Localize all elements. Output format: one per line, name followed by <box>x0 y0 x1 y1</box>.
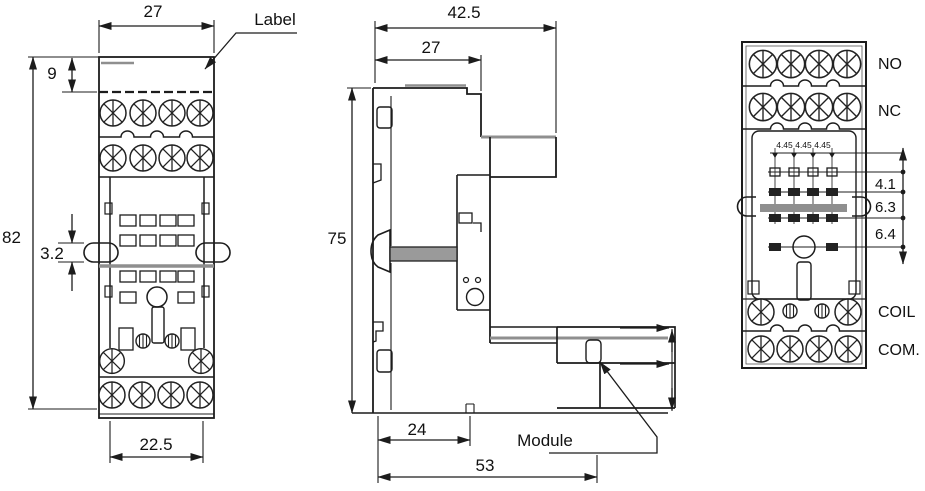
dim-front-width-top: 27 <box>144 2 163 21</box>
hold-down-clip-left <box>84 243 118 262</box>
side-notch-left <box>738 197 757 216</box>
dim-side-bottom-total: 53 <box>476 456 495 475</box>
dim-side-bottom-inner: 24 <box>408 420 427 439</box>
dim-front-width-bottom: 22.5 <box>139 435 172 454</box>
pin-row-1 <box>120 215 194 226</box>
front-view: 27 Label 9 82 3.2 22.5 <box>2 2 297 463</box>
technical-drawing-page: 27 Label 9 82 3.2 22.5 <box>0 0 925 491</box>
latch-screw <box>467 289 484 306</box>
module-callout: Module <box>517 431 573 450</box>
release-lever-bar <box>390 247 457 261</box>
dim-pin-pitch-1: 4.45 <box>776 140 793 150</box>
dim-front-label-height: 9 <box>47 64 56 83</box>
dim-row-gap-3: 6.4 <box>875 226 896 243</box>
dim-side-depth-total: 42.5 <box>447 3 480 22</box>
bottom-view: 4.45 4.45 4.45 4.1 6.3 6.4 NO NC COIL CO… <box>738 42 920 368</box>
side-view: 42.5 27 75 24 53 Module <box>328 3 675 483</box>
dim-pin-pitch-3: 4.45 <box>814 140 831 150</box>
dim-front-total-height: 82 <box>2 228 21 247</box>
bottom-view-pin-field <box>738 131 904 318</box>
label-callout: Label <box>254 10 296 29</box>
pin-row-4 <box>120 287 194 307</box>
pin-row-2 <box>120 235 194 246</box>
dim-pin-pitch-2: 4.45 <box>795 140 812 150</box>
din-rail-slot-bottom <box>377 350 392 372</box>
center-hole <box>147 287 167 307</box>
dim-front-clip: 3.2 <box>40 244 64 263</box>
pin-row-3 <box>120 271 194 282</box>
row-label-nc: NC <box>878 103 901 120</box>
dim-row-gap-1: 4.1 <box>875 176 896 193</box>
row-label-no: NO <box>878 56 902 73</box>
keying-slot <box>797 262 811 300</box>
bottom-view-dimensions: 4.45 4.45 4.45 4.1 6.3 6.4 <box>776 140 905 264</box>
relay-socket-dimension-drawing: 27 Label 9 82 3.2 22.5 <box>0 0 925 491</box>
row-label-coil: COIL <box>878 304 915 321</box>
keying-slot <box>152 307 164 343</box>
dim-side-depth-body: 27 <box>422 38 441 57</box>
dim-side-height: 75 <box>328 229 347 248</box>
side-view-dimensions: 42.5 27 75 24 53 Module <box>328 3 672 483</box>
din-rail-slot-top <box>377 107 392 128</box>
label-leader-arrow <box>205 33 297 69</box>
side-notch-right <box>852 197 871 216</box>
row-label-com: COM. <box>878 342 920 359</box>
hold-down-clip-right <box>196 243 230 262</box>
front-view-pin-sockets <box>119 215 195 350</box>
metal-strip <box>760 204 847 212</box>
dim-row-gap-2: 6.3 <box>875 199 896 216</box>
module-clip-tab <box>586 340 601 363</box>
